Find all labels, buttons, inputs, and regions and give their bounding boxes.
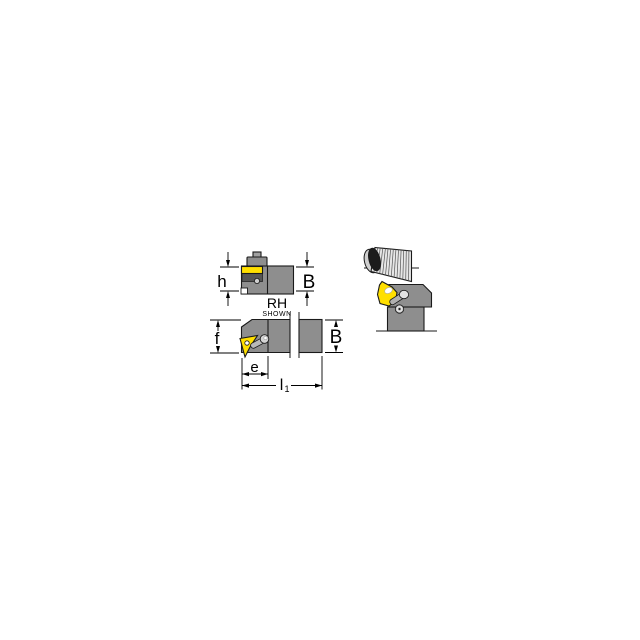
dimension-b-top-label: B [303, 272, 316, 293]
dimension-h: h [217, 252, 239, 306]
side-view-body-right [299, 320, 322, 353]
hand-designation-label: RH [267, 295, 287, 311]
dimension-l1-subscript: 1 [285, 384, 290, 394]
toolholder-dimension-drawing: h B RH SHOWN [0, 0, 640, 640]
top-view-insert [242, 267, 263, 274]
dimension-f: f [210, 320, 241, 353]
dimension-e-label: e [250, 359, 258, 376]
top-view-screw-hole [254, 278, 259, 283]
perspective-holder-shank [388, 307, 425, 331]
arrowhead [242, 372, 249, 376]
top-view-corner-notch [241, 288, 248, 294]
dimension-f-label: f [215, 329, 220, 348]
side-view-clamp-screw-highlight [264, 336, 267, 339]
perspective-pivot-screw-dot [398, 308, 400, 310]
arrowhead [334, 320, 338, 327]
side-view: f B e l 1 [210, 312, 343, 394]
diagram-canvas: h B RH SHOWN [0, 0, 640, 640]
dimension-b-top: B [296, 252, 315, 306]
arrowhead [226, 291, 230, 298]
arrowhead [261, 372, 268, 376]
arrowhead [305, 260, 309, 267]
arrowhead [242, 384, 249, 388]
dimension-b-side: B [325, 320, 343, 353]
side-view-insert-hole [245, 341, 249, 345]
arrowhead [216, 320, 220, 327]
perspective-clamp-screw-head [399, 290, 408, 298]
hand-designation-note: SHOWN [262, 311, 291, 318]
top-view: h B RH SHOWN [217, 252, 315, 318]
perspective-view [362, 247, 437, 331]
arrowhead [315, 384, 322, 388]
dimension-b-side-label: B [330, 327, 343, 348]
dimension-h-label: h [217, 272, 226, 291]
arrowhead [226, 260, 230, 267]
dimension-l1-label: l [280, 377, 284, 394]
